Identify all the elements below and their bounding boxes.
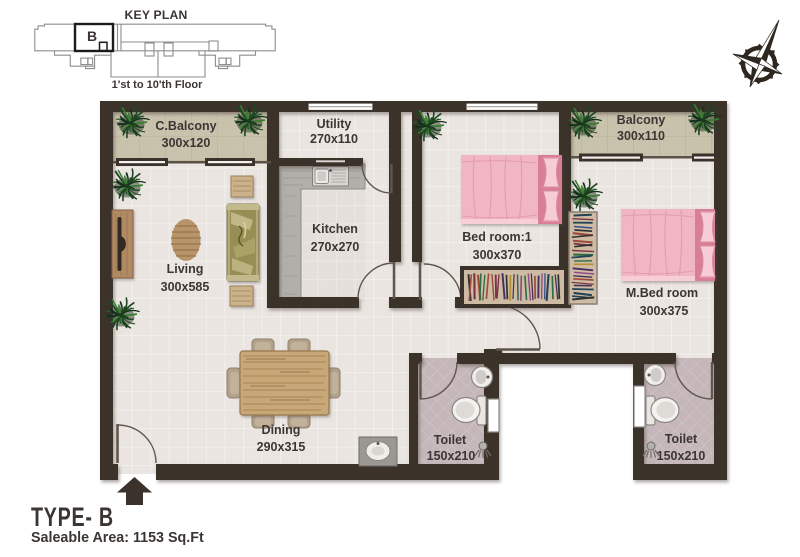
svg-text:300x375: 300x375 — [640, 304, 689, 318]
svg-text:KEY PLAN: KEY PLAN — [124, 8, 187, 22]
svg-text:C.Balcony: C.Balcony — [155, 119, 216, 133]
svg-text:Utility: Utility — [317, 117, 352, 131]
svg-text:B: B — [87, 28, 97, 44]
svg-text:Toilet: Toilet — [434, 433, 467, 447]
svg-text:Saleable Area: 1153 Sq.Ft: Saleable Area: 1153 Sq.Ft — [31, 530, 204, 546]
svg-text:150x210: 150x210 — [427, 449, 476, 463]
svg-text:Bed room:1: Bed room:1 — [462, 230, 532, 244]
svg-text:M.Bed room: M.Bed room — [626, 286, 698, 300]
svg-text:Living: Living — [167, 262, 204, 276]
svg-text:300x370: 300x370 — [473, 248, 522, 262]
svg-text:270x110: 270x110 — [310, 132, 358, 146]
svg-text:TYPE- B: TYPE- B — [31, 503, 114, 533]
svg-text:270x270: 270x270 — [311, 240, 360, 254]
svg-text:1'st to 10'th Floor: 1'st to 10'th Floor — [112, 79, 204, 91]
svg-text:300x585: 300x585 — [161, 280, 210, 294]
svg-text:150x210: 150x210 — [657, 449, 706, 463]
svg-text:Kitchen: Kitchen — [312, 222, 358, 236]
svg-text:Toilet: Toilet — [665, 432, 698, 446]
svg-text:300x120: 300x120 — [162, 136, 211, 150]
svg-text:290x315: 290x315 — [257, 440, 306, 454]
svg-text:Dining: Dining — [262, 423, 301, 437]
svg-text:Balcony: Balcony — [617, 113, 666, 127]
svg-text:300x110: 300x110 — [617, 129, 665, 143]
